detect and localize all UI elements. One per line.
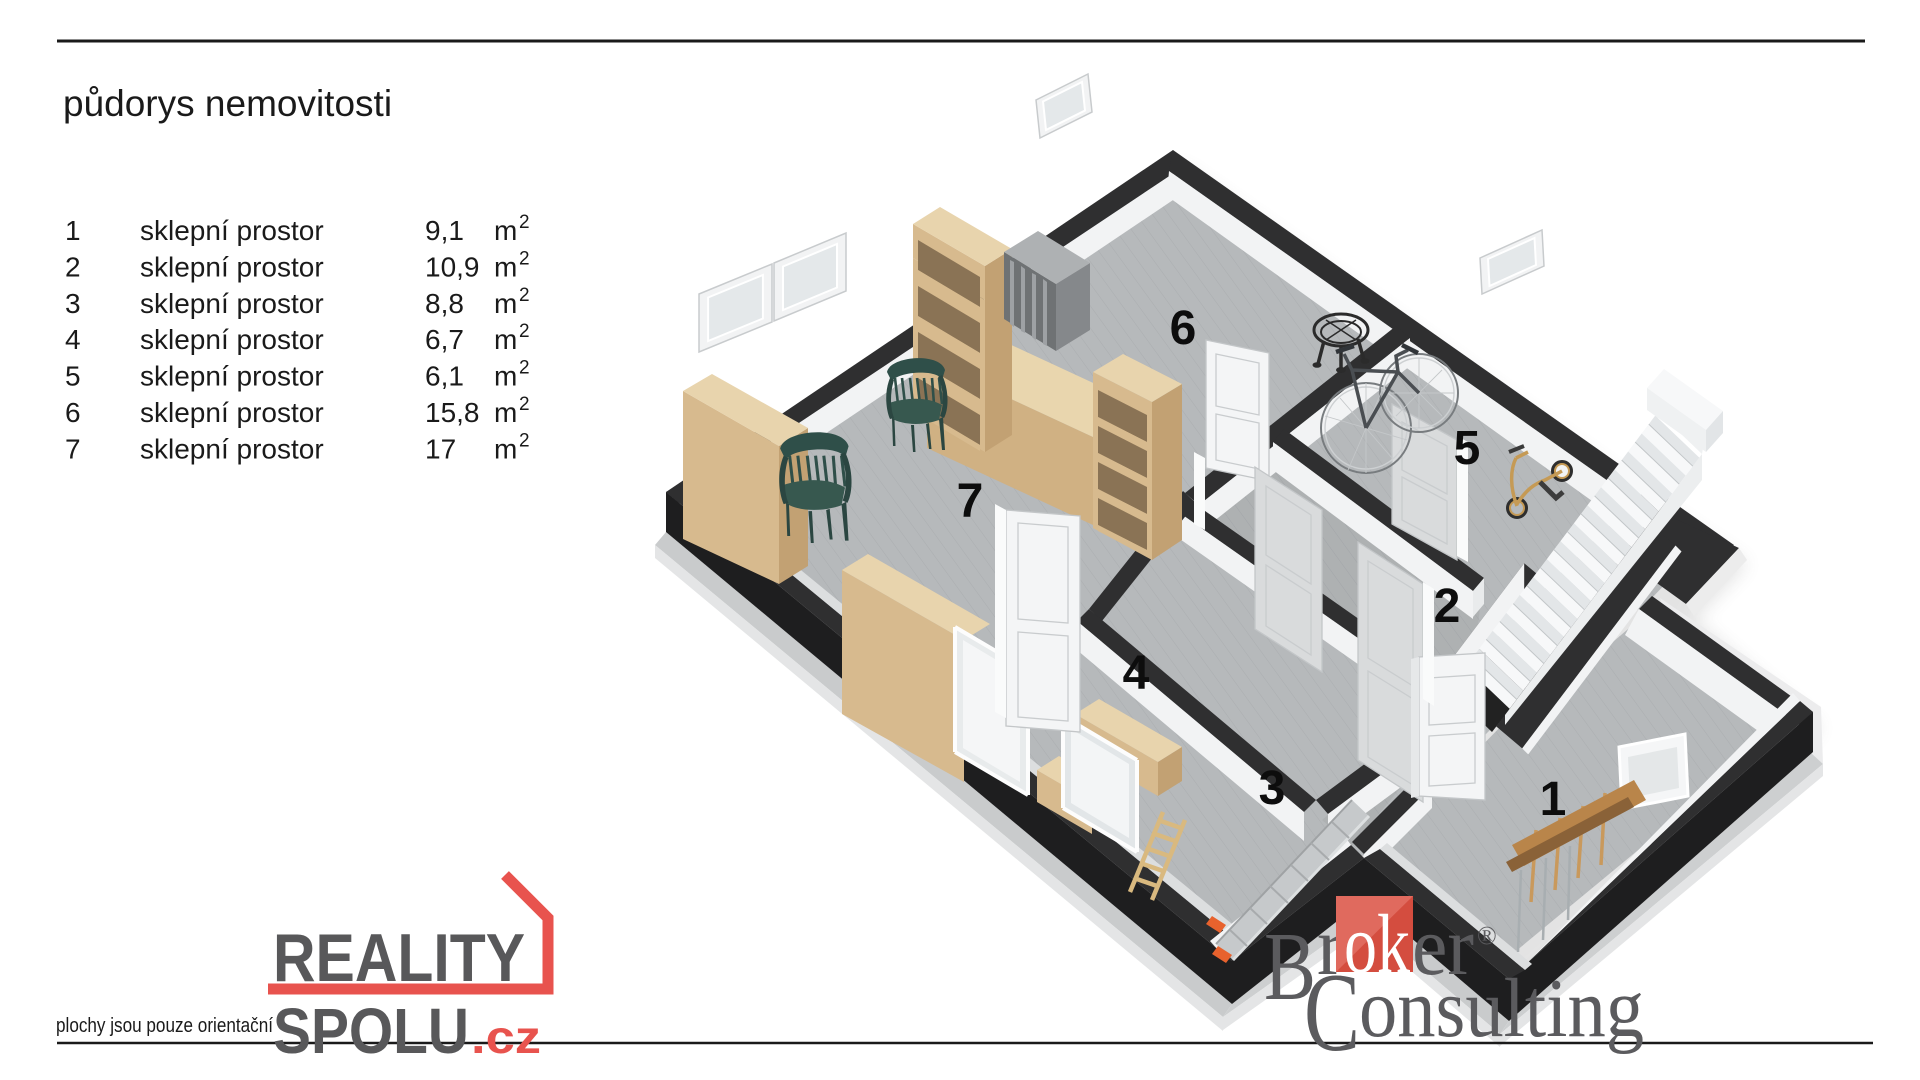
svg-text:m: m — [494, 251, 517, 282]
svg-text:10,9: 10,9 — [425, 251, 480, 282]
svg-text:plochy jsou pouze orientační: plochy jsou pouze orientační — [56, 1015, 273, 1037]
svg-text:SPOLU: SPOLU — [273, 995, 469, 1067]
svg-text:2: 2 — [1434, 580, 1461, 633]
svg-text:onsulting: onsulting — [1359, 962, 1644, 1055]
svg-text:4: 4 — [65, 324, 81, 355]
svg-text:m: m — [494, 288, 517, 319]
svg-text:.cz: .cz — [471, 1011, 541, 1063]
svg-text:5: 5 — [65, 361, 81, 392]
svg-text:sklepní prostor: sklepní prostor — [140, 361, 324, 392]
svg-text:6: 6 — [1170, 302, 1197, 355]
svg-text:3: 3 — [65, 288, 81, 319]
svg-text:m: m — [494, 361, 517, 392]
svg-text:2: 2 — [519, 321, 530, 342]
svg-text:4: 4 — [1123, 647, 1150, 700]
svg-text:m: m — [494, 397, 517, 428]
svg-text:sklepní prostor: sklepní prostor — [140, 288, 324, 319]
svg-text:8,8: 8,8 — [425, 288, 464, 319]
svg-text:půdorys nemovitosti: půdorys nemovitosti — [63, 83, 392, 124]
svg-text:sklepní prostor: sklepní prostor — [140, 397, 324, 428]
svg-text:5: 5 — [1454, 422, 1481, 475]
svg-text:sklepní prostor: sklepní prostor — [140, 433, 324, 464]
svg-text:6,7: 6,7 — [425, 324, 464, 355]
svg-text:2: 2 — [519, 285, 530, 306]
svg-text:2: 2 — [519, 248, 530, 269]
svg-text:7: 7 — [65, 433, 81, 464]
svg-text:1: 1 — [1540, 773, 1567, 826]
svg-text:m: m — [494, 433, 517, 464]
svg-text:m: m — [494, 324, 517, 355]
svg-text:sklepní prostor: sklepní prostor — [140, 324, 324, 355]
svg-text:C: C — [1304, 951, 1360, 1075]
svg-text:6: 6 — [65, 397, 81, 428]
svg-text:sklepní prostor: sklepní prostor — [140, 215, 324, 246]
svg-text:3: 3 — [1259, 762, 1286, 815]
svg-text:15,8: 15,8 — [425, 397, 480, 428]
svg-text:m: m — [494, 215, 517, 246]
svg-text:6,1: 6,1 — [425, 361, 464, 392]
svg-text:2: 2 — [519, 430, 530, 451]
svg-text:7: 7 — [957, 475, 984, 528]
svg-text:2: 2 — [65, 251, 81, 282]
svg-text:17: 17 — [425, 433, 456, 464]
svg-text:9,1: 9,1 — [425, 215, 464, 246]
svg-text:2: 2 — [519, 394, 530, 415]
svg-text:2: 2 — [519, 358, 530, 379]
svg-text:sklepní prostor: sklepní prostor — [140, 251, 324, 282]
svg-text:1: 1 — [65, 215, 81, 246]
svg-text:®: ® — [1477, 921, 1497, 950]
svg-text:2: 2 — [519, 212, 530, 233]
